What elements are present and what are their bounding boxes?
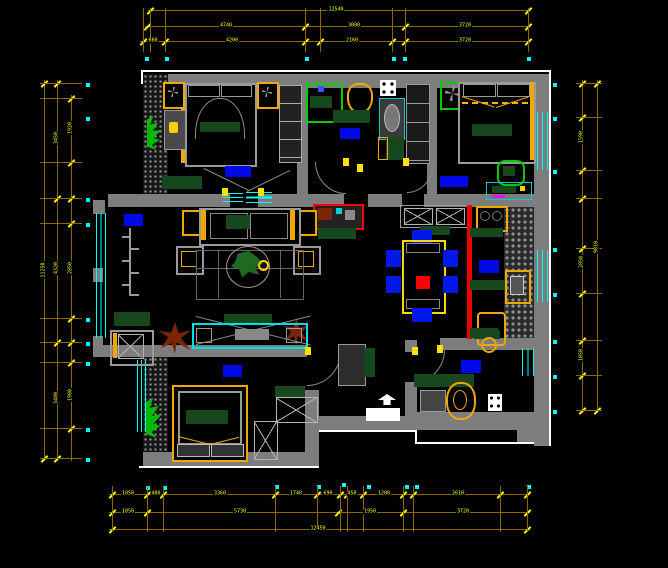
witness-line <box>40 342 82 343</box>
witness-line <box>165 8 166 52</box>
burner <box>492 211 502 221</box>
witness-line <box>576 83 602 84</box>
witness-line <box>528 8 529 52</box>
door-pivot <box>222 188 228 196</box>
desk-lamp-dot <box>520 186 525 191</box>
plant-branch-segment <box>122 284 131 286</box>
dimension-tick <box>41 455 49 463</box>
door-pivot <box>412 347 418 355</box>
bench-master <box>162 176 202 189</box>
rug-line <box>280 250 281 298</box>
selection-grip <box>392 57 396 61</box>
dining-chair-right[interactable] <box>443 250 458 267</box>
bed2-rail-right <box>530 82 534 160</box>
witness-line <box>576 410 602 411</box>
selection-grip <box>553 410 557 414</box>
selection-grip <box>145 57 149 61</box>
dimension-label[interactable]: 450 <box>346 492 357 497</box>
dimension-label[interactable]: 480 <box>150 492 161 497</box>
witness-line <box>576 375 602 376</box>
witness-line <box>275 486 276 532</box>
selection-grip <box>553 375 557 379</box>
witness-line <box>576 117 602 118</box>
selection-grip <box>86 428 90 432</box>
selection-grip <box>553 248 557 252</box>
witness-line <box>405 8 406 52</box>
dimension-line <box>71 95 72 461</box>
selection-grip <box>367 485 371 489</box>
selection-grip <box>305 57 309 61</box>
dimension-label[interactable]: 1200 <box>377 492 391 497</box>
witness-line <box>527 486 528 532</box>
dimension-label[interactable]: 3480 <box>55 391 60 405</box>
dimension-label[interactable]: 1050 <box>121 510 135 515</box>
headboard-panel <box>188 85 220 97</box>
dimension-label[interactable]: 2160 <box>345 39 359 44</box>
cad-canvas[interactable]: 1254047403000372066042002160372010504803… <box>0 0 668 568</box>
room-label-bedroom-2[interactable] <box>440 176 468 187</box>
plant-branch-segment <box>130 248 139 250</box>
selection-grip <box>553 117 557 121</box>
witness-line <box>150 8 151 52</box>
dimension-label[interactable]: 660 <box>147 39 158 44</box>
selection-grip <box>86 223 90 227</box>
headboard-panel <box>497 84 530 97</box>
dimension-label[interactable]: 5730 <box>233 510 247 515</box>
selection-grip <box>86 362 90 366</box>
room-label-kitchen[interactable] <box>479 260 499 273</box>
wardrobe3-top <box>275 386 305 397</box>
selection-grip <box>86 117 90 121</box>
dimension-label[interactable]: 3720 <box>456 510 470 515</box>
selection-grip <box>86 198 90 202</box>
bath1-cabinet <box>333 110 370 123</box>
washer-panel <box>118 334 144 359</box>
door-leaf-line <box>247 170 291 192</box>
dimension-label[interactable]: 4200 <box>225 39 239 44</box>
room-label-bathroom-1[interactable] <box>340 128 360 139</box>
sofa-cushion <box>250 213 288 239</box>
wardrobe3-box[interactable] <box>254 421 278 460</box>
entry-direction-arrow <box>378 394 396 405</box>
window-bed3-left <box>137 360 146 432</box>
table-end-cap <box>406 243 440 253</box>
wall-bath2-left-lower <box>405 382 417 426</box>
dimension-tick <box>594 407 602 415</box>
door-pivot <box>258 188 264 196</box>
witness-line <box>40 318 82 319</box>
wardrobe3-box[interactable] <box>276 397 318 423</box>
entry-cabinet[interactable] <box>338 344 366 386</box>
dimension-line <box>145 26 530 27</box>
dimension-label[interactable]: 1920 <box>69 121 74 135</box>
bath1-tall-cabinet <box>386 137 404 160</box>
balcony-bench <box>114 312 150 326</box>
outline-bottom-entry <box>317 430 417 432</box>
selection-grip <box>86 318 90 322</box>
dimension-label[interactable]: 3450 <box>55 131 60 145</box>
dimension-label[interactable]: 690 <box>322 492 333 497</box>
dimension-label[interactable]: 1980 <box>69 388 74 402</box>
witness-line <box>40 223 82 224</box>
selection-grip <box>403 57 407 61</box>
witness-line <box>392 8 393 52</box>
dimension-tick <box>579 407 587 415</box>
witness-line <box>112 486 113 532</box>
wardrobe-master[interactable] <box>279 85 302 163</box>
witness-line <box>40 458 82 459</box>
witness-line <box>40 83 82 84</box>
shower-shelf <box>310 96 332 108</box>
dimension-label[interactable]: 9810 <box>595 240 600 254</box>
dimension-label[interactable]: 4740 <box>219 24 233 29</box>
witness-line <box>413 486 414 532</box>
bed-pillow-strip <box>200 122 240 132</box>
window-bath2-right <box>522 348 534 376</box>
shower-head-icon <box>318 86 324 92</box>
bed3-drawer <box>211 444 244 457</box>
dining-chair-bottom[interactable] <box>412 308 432 322</box>
dimension-label[interactable]: 3720 <box>458 24 472 29</box>
outline-top <box>141 70 551 72</box>
entry-cabinet-side <box>364 348 375 377</box>
witness-line <box>40 362 82 363</box>
window-balcony-left <box>96 213 106 338</box>
shoe-bench <box>318 228 356 239</box>
wall-balcony-post-1 <box>93 200 105 214</box>
door-arc-bath1 <box>315 162 346 194</box>
dimension-label[interactable]: 1740 <box>289 492 303 497</box>
wall-mid-1 <box>108 194 230 207</box>
plant-branch-segment <box>130 294 139 296</box>
plant-branch-segment <box>122 260 131 262</box>
selection-grip <box>553 170 557 174</box>
armchair-trim <box>181 251 197 267</box>
wall-bath2-right-block <box>517 412 536 442</box>
dimension-label[interactable]: 3720 <box>458 39 472 44</box>
witness-line <box>40 198 82 199</box>
linen-shelf[interactable] <box>406 84 430 164</box>
dresser-lamp-icon <box>169 122 178 133</box>
sink-basin <box>510 276 524 295</box>
dimension-label[interactable]: 2850 <box>69 261 74 275</box>
witness-line <box>305 8 306 52</box>
vent-shaft <box>380 80 396 96</box>
dimension-tick <box>54 455 62 463</box>
selection-grip <box>527 57 531 61</box>
bath1-cabinet-door <box>378 137 388 160</box>
dimension-tick <box>335 509 343 517</box>
bath2-cabinet <box>420 390 446 412</box>
plant-branch-segment <box>130 272 139 274</box>
bed3-pillow <box>186 410 228 424</box>
door-pivot <box>357 164 363 172</box>
console-decor-gray <box>345 210 355 220</box>
sideboard-panel <box>404 208 433 225</box>
witness-line <box>40 98 82 99</box>
dimension-label[interactable]: 1950 <box>363 510 377 515</box>
dining-chair-left[interactable] <box>386 250 401 267</box>
toilet-2-seat <box>453 390 467 410</box>
door-pivot <box>305 347 311 355</box>
selection-grip <box>553 83 557 87</box>
dimension-label[interactable]: 1050 <box>121 492 135 497</box>
window-bed2-right <box>537 112 548 170</box>
witness-line <box>163 486 164 532</box>
outline-bottom-bed3 <box>139 466 319 468</box>
rug-line <box>218 250 219 298</box>
basin-bowl <box>384 104 400 132</box>
door-pivot <box>437 345 443 353</box>
chair-cushion <box>503 166 515 176</box>
witness-line <box>576 293 602 294</box>
console-decor-brown <box>318 208 332 220</box>
dimension-label[interactable]: 4320 <box>55 261 60 275</box>
dimension-label[interactable]: 11250 <box>42 261 47 278</box>
window-kitchen-right <box>537 250 548 302</box>
witness-line <box>403 486 404 532</box>
dimension-label[interactable]: 12450 <box>309 527 326 532</box>
door-arc-entry <box>307 352 341 386</box>
speaker <box>286 328 302 343</box>
selection-grip <box>165 57 169 61</box>
witness-line <box>500 486 501 532</box>
washer-accent <box>113 333 117 358</box>
room-label-bathroom-2[interactable] <box>461 360 481 373</box>
selection-grip <box>86 458 90 462</box>
burner <box>480 211 490 221</box>
witness-line <box>576 198 602 199</box>
plant-branch-segment <box>122 236 131 238</box>
bed2-canopy-zigzag <box>462 102 528 104</box>
witness-line <box>143 8 144 52</box>
outline-step-2 <box>415 430 417 444</box>
kettle-icon <box>481 337 497 353</box>
kitchen-counter-2 <box>470 280 506 290</box>
door-pivot <box>343 158 349 166</box>
headboard-panel <box>463 84 496 97</box>
dimension-label[interactable]: 2610 <box>451 492 465 497</box>
dimension-label[interactable]: 1050 <box>580 348 585 362</box>
lamp-icon <box>262 87 272 97</box>
sofa-throw <box>226 215 250 229</box>
bed3-drawer <box>177 444 210 457</box>
dimension-label[interactable]: 1590 <box>580 130 585 144</box>
kitchen-divider-line <box>467 205 472 339</box>
table-centerpiece <box>416 276 430 289</box>
selection-grip <box>405 485 409 489</box>
desk-item <box>492 186 516 193</box>
witness-line <box>576 340 602 341</box>
console-decor-cyan <box>336 208 342 214</box>
witness-line <box>147 486 148 532</box>
selection-grip <box>553 340 557 344</box>
speaker <box>196 328 212 343</box>
sofa-arm-right <box>290 210 295 240</box>
room-label-master-bedroom[interactable] <box>225 166 251 177</box>
outline-right <box>549 70 551 446</box>
tv-soundbar <box>224 314 272 323</box>
dimension-label[interactable]: 3000 <box>347 24 361 29</box>
outline-bottom-bath2 <box>415 442 551 444</box>
door-pivot <box>403 158 409 166</box>
dining-chair-left[interactable] <box>386 276 401 293</box>
bed2-pillow-strip <box>472 124 512 136</box>
lamp-icon <box>168 87 178 97</box>
witness-line <box>340 486 341 532</box>
room-label-bedroom-3[interactable] <box>223 365 242 377</box>
witness-line <box>320 8 321 52</box>
kitchen-counter-1 <box>470 228 503 237</box>
dimension-label[interactable]: 3360 <box>213 492 227 497</box>
headboard-panel <box>221 85 252 97</box>
coffee-table-accent <box>258 260 269 271</box>
tv-screen <box>235 329 269 340</box>
selection-marker-magenta <box>493 195 505 198</box>
selection-grip <box>86 342 90 346</box>
dimension-label[interactable]: 12540 <box>327 8 344 13</box>
witness-line <box>40 428 82 429</box>
selection-grip <box>553 293 557 297</box>
wall-mid-3 <box>368 194 402 207</box>
witness-line <box>576 170 602 171</box>
witness-line <box>40 162 82 163</box>
entry-label-box <box>366 408 400 421</box>
sofa-arm-left <box>201 210 206 240</box>
room-label-living-room[interactable] <box>124 214 143 226</box>
dining-chair-right[interactable] <box>443 276 458 293</box>
dimension-label[interactable]: 2850 <box>580 255 585 269</box>
sideboard-panel <box>436 208 465 225</box>
floor-drain <box>488 394 502 411</box>
selection-grip <box>86 83 90 87</box>
selection-grip <box>342 483 346 487</box>
selection-grip <box>415 485 419 489</box>
